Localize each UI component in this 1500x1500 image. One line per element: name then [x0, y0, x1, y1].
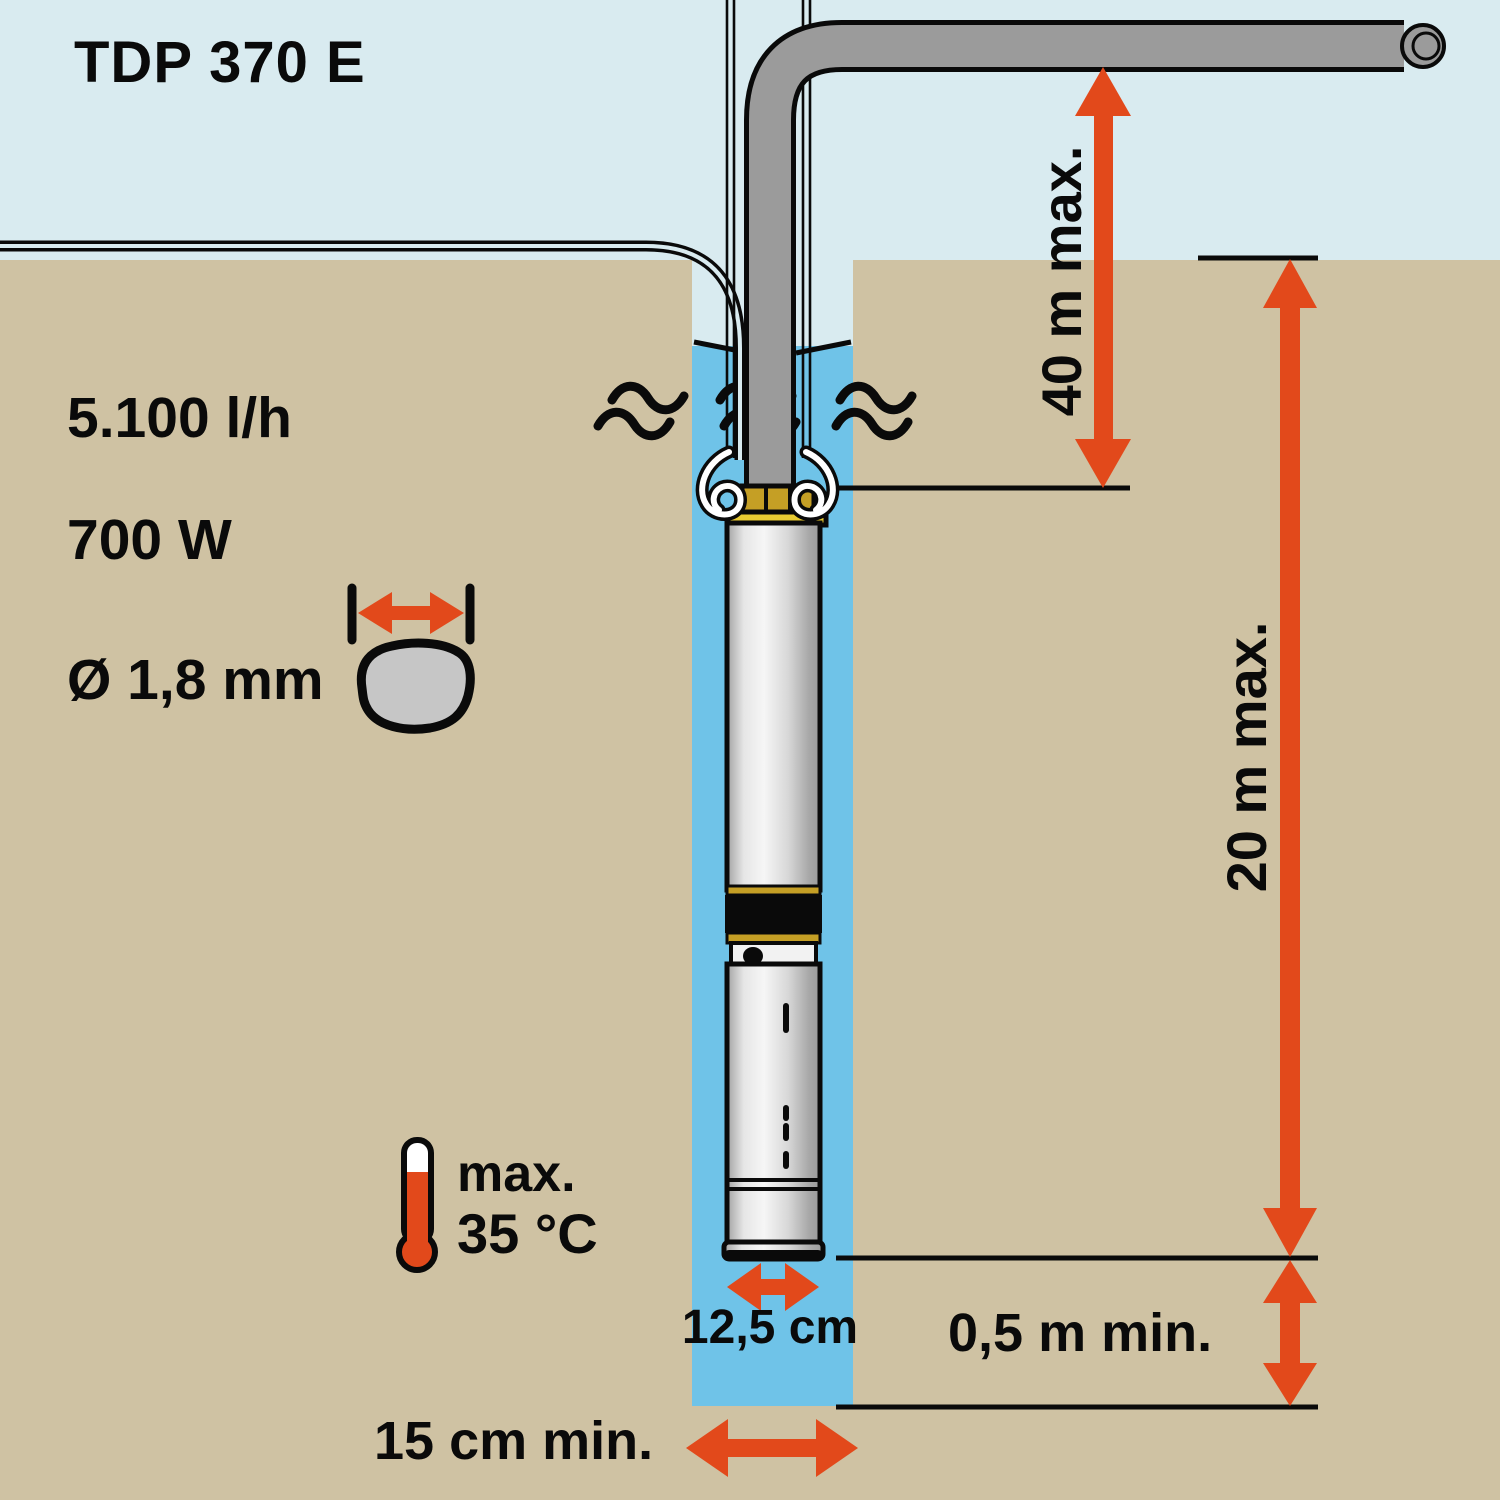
submersible-pump [724, 486, 826, 1260]
pump-motor-body [727, 964, 820, 1242]
dim-pump-diameter-label: 12,5 cm [682, 1304, 858, 1352]
dim-delivery-head-label: 40 m max. [1034, 146, 1090, 417]
temperature-prefix: max. [457, 1148, 576, 1200]
pump-body [727, 523, 820, 890]
page-title: TDP 370 E [74, 34, 366, 92]
dim-bottom-clearance-label: 0,5 m min. [948, 1306, 1212, 1360]
dim-immersion-depth-label: 20 m max. [1219, 622, 1275, 893]
thermometer-icon [399, 1140, 435, 1270]
diagram-pump-installation: TDP 370 E 5.100 l/h 700 W Ø 1,8 mm max. … [0, 0, 1500, 1500]
grain-icon [361, 643, 470, 729]
spec-flow-rate: 5.100 l/h [67, 390, 292, 447]
dim-well-diameter-label: 15 cm min. [374, 1414, 653, 1468]
spec-grain-size: Ø 1,8 mm [67, 652, 324, 709]
temperature-value: 35 °C [457, 1206, 598, 1262]
pump-coupling-band [725, 895, 822, 933]
spec-power: 700 W [67, 512, 232, 569]
